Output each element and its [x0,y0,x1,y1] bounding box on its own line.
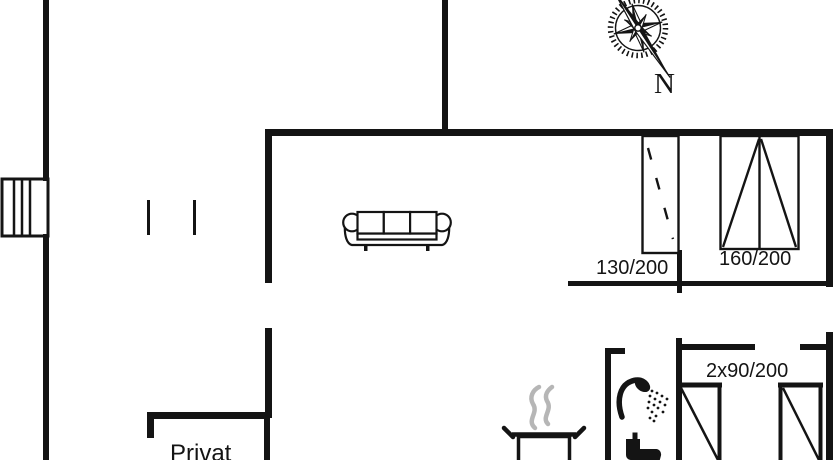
compass-hub [635,25,641,31]
compass-rose-icon [578,0,700,102]
pot-handle-left [504,428,513,437]
entry-tick-1 [147,200,150,235]
chimney-icon [0,176,52,240]
dimension-label-window-large: 160/200 [719,249,791,269]
wall-privat-right [264,418,270,460]
wall-left-upper [43,0,49,181]
shower-spray [647,390,669,423]
steam-wisps [531,387,552,428]
toilet-icon [620,429,667,460]
double-door-elevation-icon [676,381,826,460]
wall-bath-left-top [605,348,625,354]
window-double-casement-icon [718,134,800,252]
entry-tick-2 [193,200,196,235]
terrace-edge-line [568,281,833,286]
window-sliding-icon [640,134,684,256]
door1-diagonal [681,388,718,460]
wall-top-stub [442,0,448,131]
terrace-post-line [677,250,682,293]
wall-bath-top-b [800,344,826,350]
wall-right-upper [826,129,833,287]
sofa-leg [364,245,368,251]
wall-privat-left-tick [147,412,154,438]
sofa-icon [341,209,453,254]
wall-livingroom-left-upper [265,129,272,283]
shower-icon [613,374,675,426]
pot-body [519,437,570,460]
sofa-cushion [384,212,410,234]
sofa-cushion [358,212,384,234]
pot-handle-right [575,428,584,437]
dimension-label-doors: 2x90/200 [706,361,788,381]
steaming-pot-icon [497,382,589,460]
dimension-label-window-small: 130/200 [596,258,668,278]
door2-diagonal [783,388,819,460]
wall-bath-top-a [676,344,755,350]
floor-plan: N 130/200 160/200 2x90/20 [0,0,834,460]
room-label-privat: Privat [170,442,231,460]
wall-right-lower [826,332,833,460]
wall-left-lower [43,234,49,460]
wall-bath-left [605,348,611,460]
wall-privat-top [147,412,270,419]
sofa-leg [426,245,430,251]
sofa-cushion [410,212,436,234]
north-label: N [654,70,675,99]
wall-livingroom-left-lower [265,328,272,418]
